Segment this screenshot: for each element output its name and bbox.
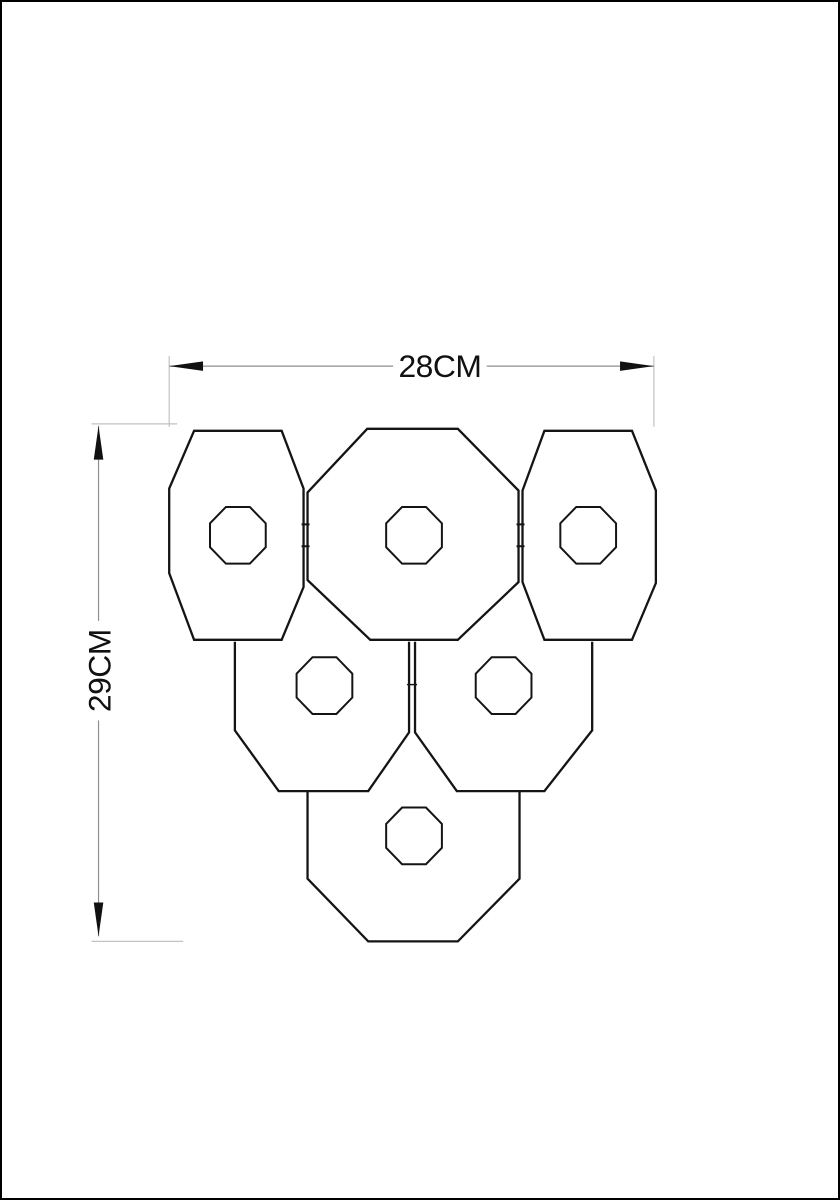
- fixture-drawing: [169, 429, 656, 942]
- shade-top-right-outline: [523, 431, 656, 640]
- dimension-drawing: 28CM 29CM: [2, 2, 838, 1198]
- shade-bottom: [308, 791, 520, 941]
- shade-middle-left-hole: [297, 657, 353, 714]
- arrow-left-icon: [169, 361, 203, 371]
- shade-middle-left-outline: [235, 642, 409, 791]
- shade-top-center-outline: [308, 429, 519, 640]
- shade-middle-right-outline: [415, 642, 592, 791]
- shade-bottom-outline: [308, 791, 520, 941]
- shade-top-left: [169, 431, 303, 640]
- arrow-right-icon: [620, 361, 654, 371]
- shade-top-left-outline: [169, 431, 303, 640]
- width-dimension: 28CM: [169, 346, 654, 427]
- height-dimension-label: 29CM: [82, 629, 118, 712]
- arrow-up-icon: [94, 426, 104, 460]
- shade-top-center: [308, 429, 519, 640]
- height-dimension: 29CM: [81, 424, 184, 942]
- arrow-down-icon: [94, 903, 104, 937]
- width-dimension-label: 28CM: [398, 348, 481, 384]
- shade-middle-left: [235, 642, 409, 791]
- shade-middle-right: [415, 642, 592, 791]
- shade-top-right: [523, 431, 656, 640]
- shade-bottom-hole: [386, 808, 442, 865]
- technical-drawing-page: 28CM 29CM: [0, 0, 840, 1200]
- shade-middle-right-hole: [476, 657, 532, 714]
